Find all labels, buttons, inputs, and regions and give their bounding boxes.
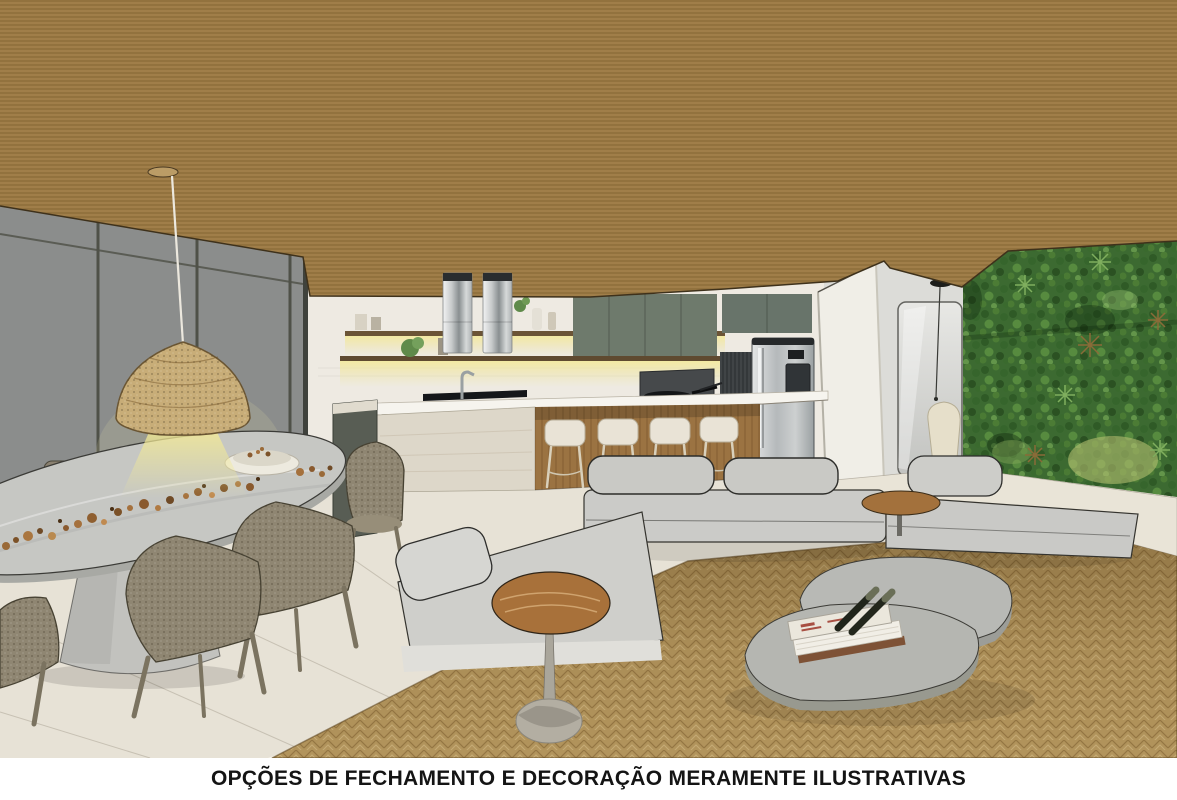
partition-wall [818, 263, 884, 484]
caption-band: OPÇÕES DE FECHAMENTO E DECORAÇÃO MERAMEN… [0, 758, 1177, 800]
caption-text: OPÇÕES DE FECHAMENTO E DECORAÇÃO MERAMEN… [211, 767, 966, 791]
render-page: OPÇÕES DE FECHAMENTO E DECORAÇÃO MERAMEN… [0, 0, 1177, 800]
render-image [0, 0, 1177, 758]
